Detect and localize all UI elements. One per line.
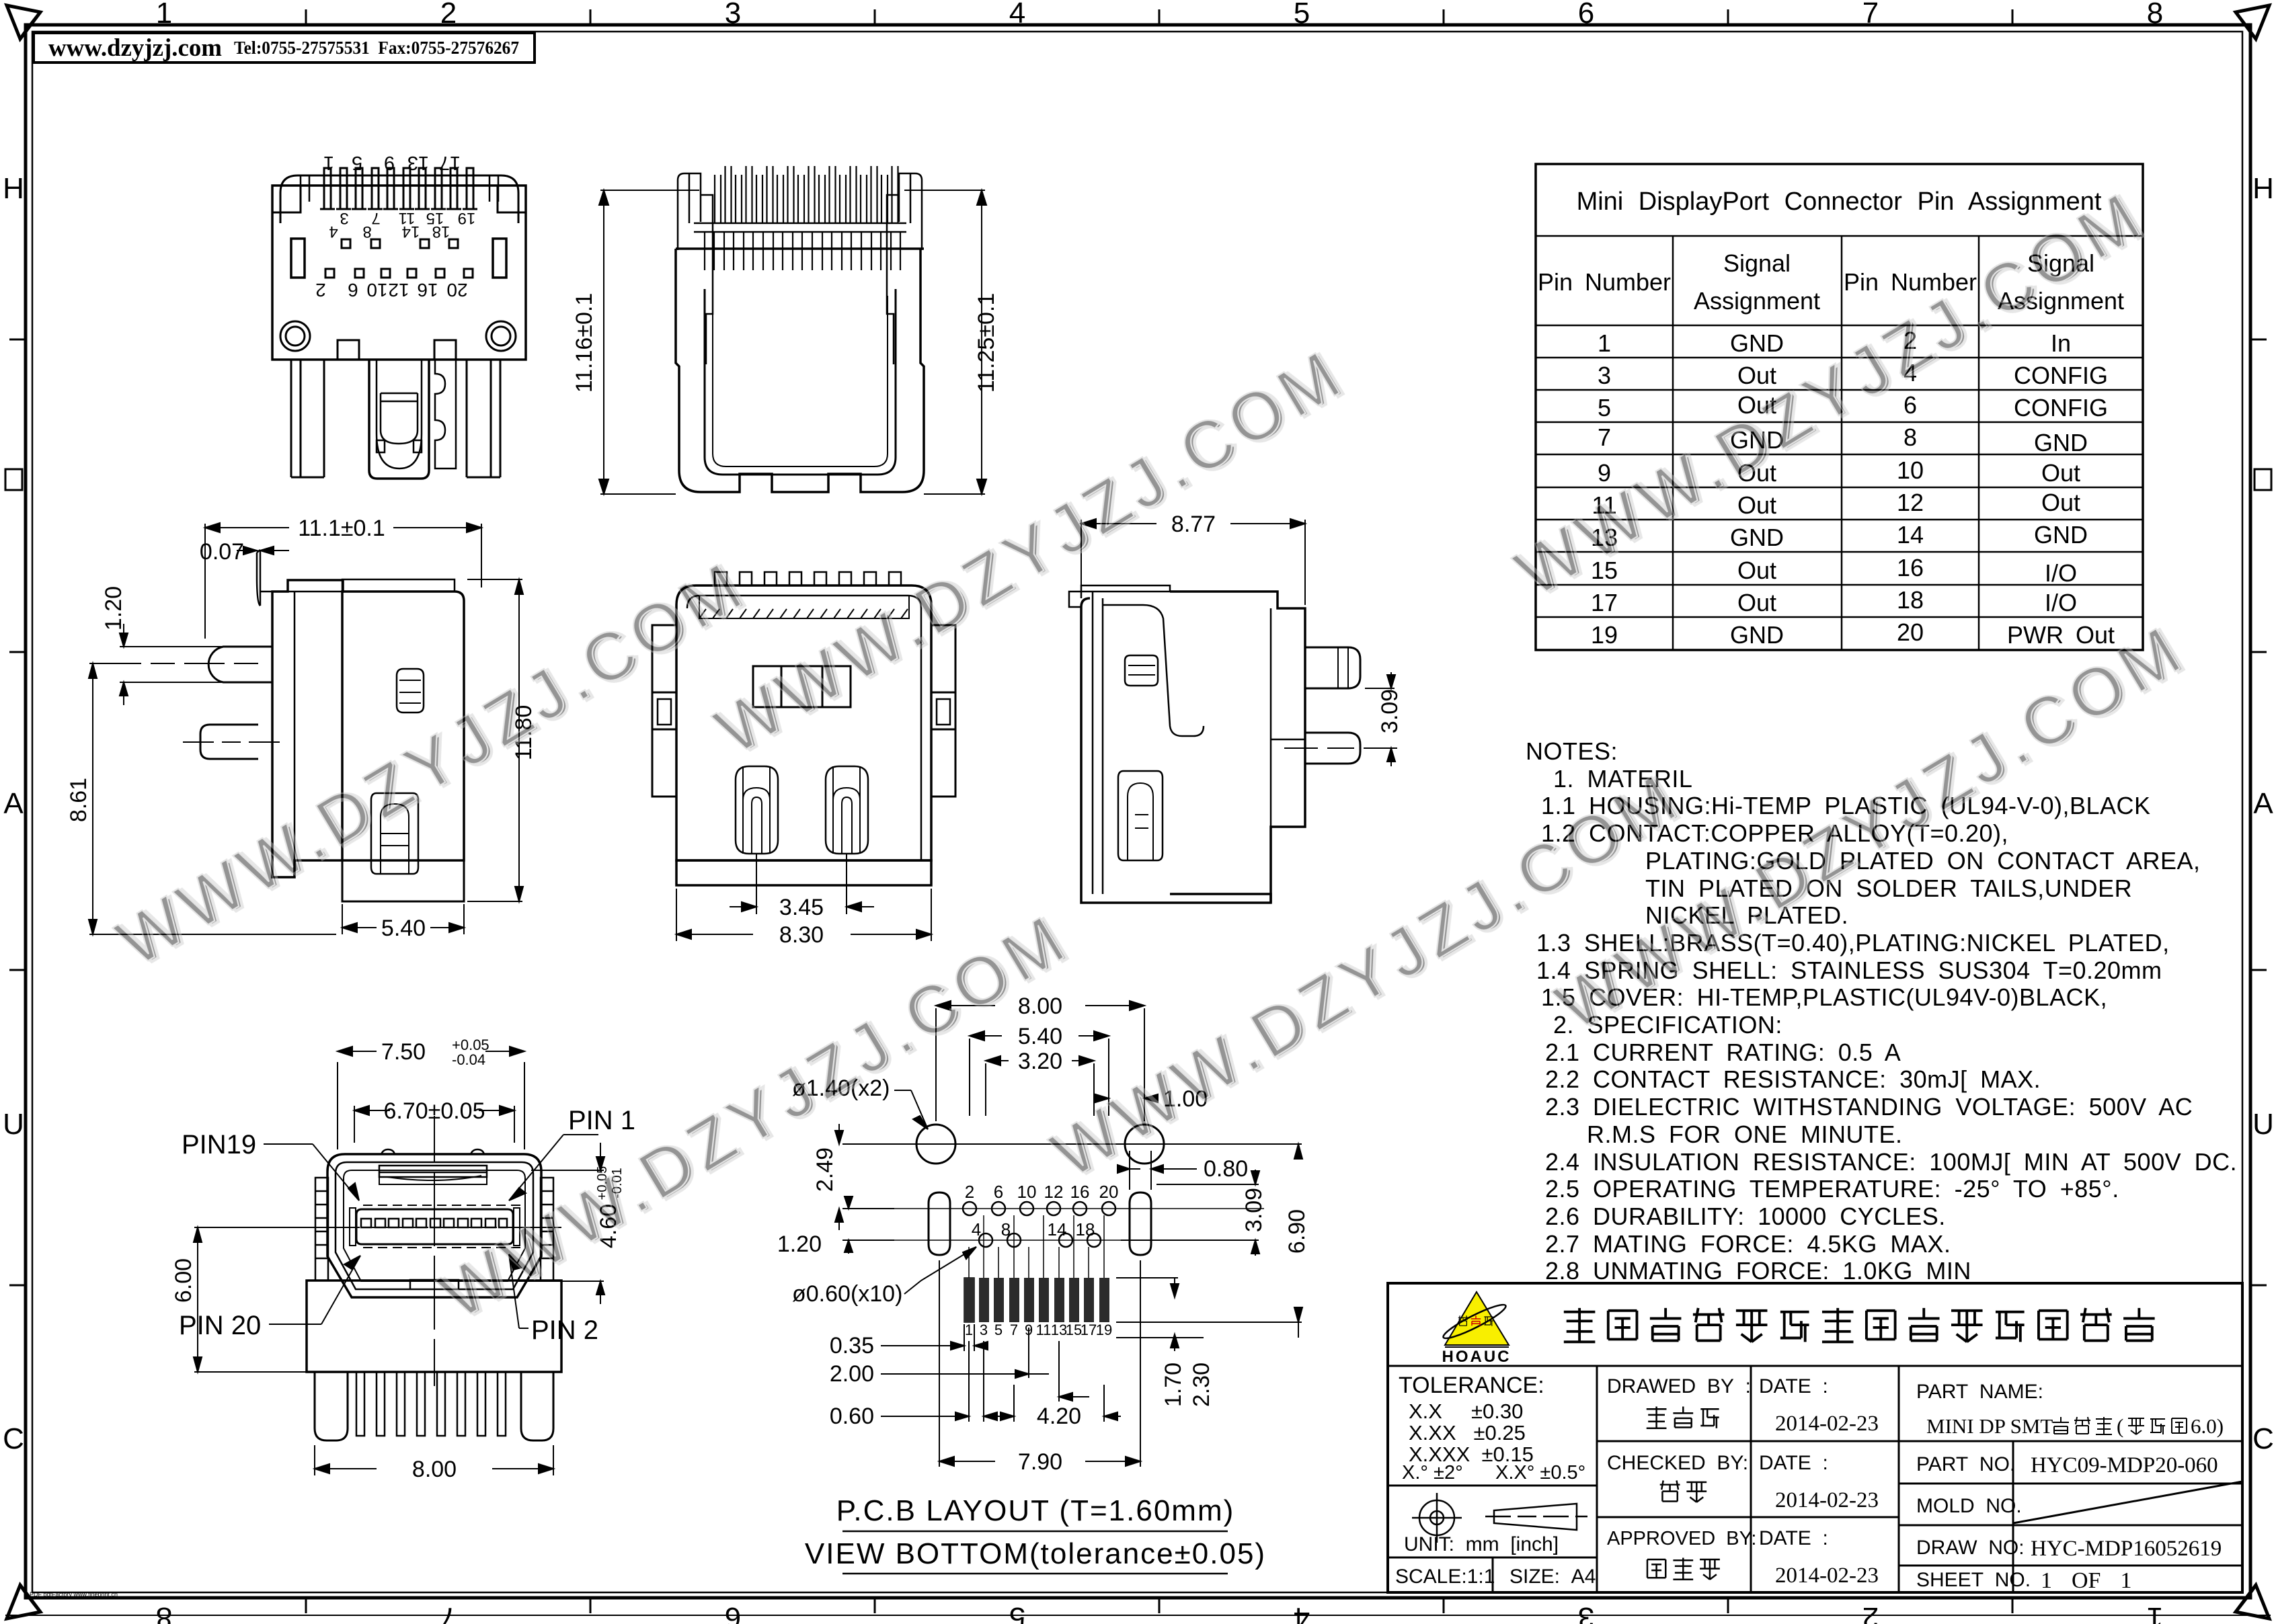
svg-text:12: 12 [1897,489,1924,516]
svg-text:2.1 CURRENT RATING: 0.5 A: 2.1 CURRENT RATING: 0.5 A [1545,1039,1901,1066]
svg-text:R.M.S FOR ONE MINUTE.: R.M.S FOR ONE MINUTE. [1587,1121,1903,1148]
svg-text:4.20: 4.20 [1037,1404,1081,1429]
svg-text:16: 16 [417,280,438,300]
svg-text:6: 6 [994,1182,1003,1202]
svg-text:2.6 DURABILITY: 10000 CYCLE: 2.6 DURABILITY: 10000 CYCLES. [1545,1203,1946,1230]
svg-text:7: 7 [440,1601,457,1624]
svg-text:10: 10 [1897,456,1924,484]
svg-text:HYC-MDP16052619: HYC-MDP16052619 [2031,1537,2222,1561]
svg-text:Out: Out [1737,589,1776,616]
svg-text:Pin Number: Pin Number [1538,268,1671,296]
svg-text:2014-02-23: 2014-02-23 [1775,1412,1879,1436]
svg-text:4: 4 [972,1219,981,1240]
svg-text:3: 3 [725,0,741,30]
svg-text:17: 17 [1081,1322,1097,1338]
svg-text:1: 1 [1598,329,1611,357]
svg-text:TOLERANCE:: TOLERANCE: [1399,1373,1544,1398]
svg-text:4: 4 [1294,1601,1310,1624]
svg-text:CONFIG: CONFIG [2014,394,2108,421]
svg-text:1.20: 1.20 [101,586,126,631]
svg-text:2.00: 2.00 [830,1361,874,1387]
svg-text:6: 6 [348,280,358,300]
svg-text:8.61: 8.61 [66,778,91,822]
svg-text:1.70: 1.70 [1161,1363,1186,1407]
svg-text:5.40: 5.40 [1018,1024,1062,1049]
svg-text:4: 4 [1009,0,1025,30]
svg-text:P.C.B LAYOUT (T=1.60mm): P.C.B LAYOUT (T=1.60mm) [836,1494,1235,1527]
svg-text:Out: Out [1737,362,1776,389]
svg-text:2.30: 2.30 [1189,1363,1214,1407]
svg-text:3.09: 3.09 [1241,1188,1267,1232]
svg-text:8.30: 8.30 [779,922,824,948]
svg-text:A: A [2253,787,2273,820]
svg-text:6.0): 6.0) [2191,1414,2224,1438]
svg-text:UNIT: mm [inch]: UNIT: mm [inch] [1404,1533,1559,1555]
svg-text:11: 11 [1036,1322,1052,1338]
svg-text:4: 4 [329,222,338,241]
svg-text:ø0.60(x10): ø0.60(x10) [792,1281,902,1307]
svg-text:13: 13 [407,152,429,173]
svg-text:8.00: 8.00 [412,1457,457,1482]
svg-text:18: 18 [1076,1219,1095,1240]
svg-text:6.70±0.05: 6.70±0.05 [383,1098,485,1124]
svg-text:Signal: Signal [1723,249,1791,277]
svg-text:7.50: 7.50 [381,1039,426,1065]
svg-text:GND: GND [1730,524,1784,551]
svg-text:3.45: 3.45 [779,895,824,920]
svg-text:HOAUC: HOAUC [1442,1348,1512,1366]
svg-text:X.XX ±0.25: X.XX ±0.25 [1409,1421,1526,1445]
svg-text:Out: Out [1737,557,1776,584]
svg-text:DATE :: DATE : [1759,1452,1828,1474]
svg-text:2.5 OPERATING TEMPERATURE:: 2.5 OPERATING TEMPERATURE: -25° TO +85°. [1545,1175,2119,1203]
svg-text:Assignment: Assignment [1694,287,1820,315]
svg-text:GND: GND [1730,621,1784,649]
svg-text:1: 1 [156,0,172,30]
svg-text:3: 3 [980,1322,988,1338]
svg-text:U: U [3,1108,24,1141]
svg-text:20: 20 [446,280,467,300]
svg-text:HYC09-MDP20-060: HYC09-MDP20-060 [2031,1453,2218,1477]
svg-text:2.8 UNMATING FORCE: 1.0KG: 2.8 UNMATING FORCE: 1.0KG MIN [1545,1257,1971,1285]
svg-text:CONFIG: CONFIG [2014,362,2108,389]
svg-text:6.00: 6.00 [171,1258,196,1303]
svg-text:19: 19 [1591,621,1618,649]
svg-text:8: 8 [1001,1219,1011,1240]
svg-text:DATE :: DATE : [1759,1375,1828,1397]
svg-text:3: 3 [340,209,348,227]
svg-text:11.1±0.1: 11.1±0.1 [298,516,385,541]
svg-text:3.09: 3.09 [1377,689,1403,733]
svg-text:2.3 DIELECTRIC WITHSTANDING: 2.3 DIELECTRIC WITHSTANDING VOLTAGE: 500… [1545,1093,2193,1121]
svg-text:7: 7 [1862,0,1879,30]
svg-text:Out: Out [1737,491,1776,519]
svg-text:14: 14 [1048,1219,1067,1240]
svg-text:18: 18 [432,222,450,241]
svg-text:0.35: 0.35 [830,1333,874,1358]
svg-text:2: 2 [1862,1601,1879,1624]
svg-text:2: 2 [315,280,326,300]
svg-text:7: 7 [371,209,380,227]
svg-text:In: In [2051,329,2071,357]
svg-text:1 OF 1: 1 OF 1 [2041,1568,2131,1593]
svg-text:GND: GND [2034,429,2088,456]
svg-text:8: 8 [362,222,371,241]
svg-text:5: 5 [1009,1601,1025,1624]
svg-text:Out: Out [2041,489,2080,516]
svg-text:5: 5 [352,152,362,173]
svg-text:11.16±0.1: 11.16±0.1 [572,293,597,393]
svg-text:1: 1 [323,152,334,173]
svg-text:12: 12 [1044,1182,1064,1202]
svg-text:(: ( [2117,1414,2123,1438]
svg-text:SHEET NO.: SHEET NO. [1916,1569,2031,1591]
svg-text:9: 9 [384,152,395,173]
svg-text:2: 2 [440,0,457,30]
svg-text:VIEW BOTTOM(tolerance±0.05): VIEW BOTTOM(tolerance±0.05) [805,1537,1266,1570]
svg-text:SCALE:1:1: SCALE:1:1 [1395,1566,1495,1588]
svg-text:10: 10 [366,280,387,300]
svg-text:7: 7 [1010,1322,1018,1338]
svg-text:GND: GND [2034,521,2088,549]
svg-text:19: 19 [458,209,476,227]
svg-text:3: 3 [1578,1601,1594,1624]
svg-text:1: 1 [2147,1601,2163,1624]
svg-text:0.80: 0.80 [1204,1156,1248,1182]
svg-text:12: 12 [388,280,409,300]
svg-text:DRAWED BY :: DRAWED BY : [1607,1375,1751,1397]
svg-text:DRAW NO:: DRAW NO: [1916,1537,2025,1559]
svg-text:18: 18 [1897,586,1924,614]
svg-text:5.40: 5.40 [381,916,426,941]
svg-text:C: C [2252,1422,2274,1455]
svg-text:6: 6 [725,1601,741,1624]
svg-text:1.20: 1.20 [777,1231,822,1257]
svg-text:2: 2 [965,1182,974,1202]
svg-text:2.7 MATING FORCE: 4.5KG MA: 2.7 MATING FORCE: 4.5KG MAX. [1545,1230,1951,1258]
svg-text:2.2 CONTACT RESISTANCE: 30m: 2.2 CONTACT RESISTANCE: 30mJ[ MAX. [1545,1065,2041,1093]
svg-text:3.20: 3.20 [1018,1049,1062,1074]
svg-text:1: 1 [965,1322,973,1338]
svg-text:Mini DisplayPort Connector: Mini DisplayPort Connector Pin Assignmen… [1577,188,2102,216]
svg-text:I/O: I/O [2045,589,2077,616]
svg-text:C: C [3,1422,24,1455]
svg-text:11.25±0.1: 11.25±0.1 [974,293,999,393]
svg-text:PIN19: PIN19 [182,1130,256,1160]
svg-text:PART NAME:: PART NAME: [1916,1381,2043,1403]
svg-text:13: 13 [1051,1322,1067,1338]
svg-text:3: 3 [1598,362,1611,389]
svg-text:A: A [3,787,24,820]
svg-text:8: 8 [2147,0,2163,30]
svg-text:2014-02-23: 2014-02-23 [1775,1488,1879,1512]
svg-text:I/O: I/O [2045,559,2077,587]
svg-text:X.X ±0.30: X.X ±0.30 [1409,1399,1523,1423]
svg-text:H: H [3,172,24,205]
svg-text:6.90: 6.90 [1284,1209,1310,1254]
svg-text:Out: Out [2041,459,2080,487]
svg-text:14: 14 [402,222,420,241]
svg-text:H: H [2252,172,2274,205]
svg-text:8: 8 [1904,423,1917,451]
svg-text:5: 5 [994,1322,1003,1338]
svg-text:U: U [2252,1108,2274,1141]
svg-text:7: 7 [1598,423,1611,451]
svg-text:X.° ±2° X.X° ±0.5°: X.° ±2° X.X° ±0.5° [1402,1462,1585,1484]
svg-text:PIN 20: PIN 20 [179,1311,261,1340]
svg-text:5: 5 [1598,394,1611,421]
svg-text:MOLD NO.: MOLD NO. [1916,1495,2022,1517]
svg-text:0.07: 0.07 [200,539,244,565]
svg-text:8: 8 [156,1601,172,1624]
svg-text:PWR Out: PWR Out [2007,621,2115,649]
svg-text:14: 14 [1897,521,1924,549]
svg-text:19: 19 [1096,1322,1112,1338]
svg-text:Tel:0755-27575531 Fax:0755-27: Tel:0755-27575531 Fax:0755-27576267 [234,38,519,58]
svg-text:PART NO.: PART NO. [1916,1453,2015,1475]
svg-text:17: 17 [439,152,461,173]
svg-text:0.60: 0.60 [830,1404,874,1429]
svg-text:PDF pdfFactory www.fineprint.c: PDF pdfFactory www.fineprint.cn [30,1591,118,1598]
svg-text:7.90: 7.90 [1018,1449,1062,1475]
svg-text:8.77: 8.77 [1171,512,1216,537]
svg-text:20: 20 [1099,1182,1119,1202]
svg-text:16: 16 [1897,554,1924,581]
svg-text:PIN 2: PIN 2 [531,1315,598,1345]
svg-text:20: 20 [1897,618,1924,646]
svg-text:APPROVED BY:: APPROVED BY: [1607,1528,1756,1549]
svg-text:15: 15 [1066,1322,1082,1338]
svg-text:6: 6 [1578,0,1594,30]
svg-text:MINI DP SMT: MINI DP SMT [1926,1414,2053,1438]
svg-text:NOTES:: NOTES: [1526,737,1618,765]
svg-text:5: 5 [1294,0,1310,30]
svg-text:-0.04: -0.04 [452,1051,485,1068]
svg-text:17: 17 [1591,589,1618,616]
svg-text:www.dzyjzj.com: www.dzyjzj.com [48,34,222,62]
svg-text:GND: GND [1730,329,1784,357]
svg-text:2.49: 2.49 [812,1147,838,1192]
svg-text:2.4 INSULATION RESISTANCE:: 2.4 INSULATION RESISTANCE: 100MJ[ MIN AT… [1545,1148,2237,1176]
svg-text:SIZE: A4: SIZE: A4 [1509,1566,1596,1588]
svg-text:DATE :: DATE : [1759,1527,1828,1549]
svg-text:CHECKED BY:: CHECKED BY: [1607,1452,1748,1474]
svg-text:PIN 1: PIN 1 [568,1106,635,1135]
svg-text:10: 10 [1017,1182,1037,1202]
svg-text:2014-02-23: 2014-02-23 [1775,1564,1879,1588]
